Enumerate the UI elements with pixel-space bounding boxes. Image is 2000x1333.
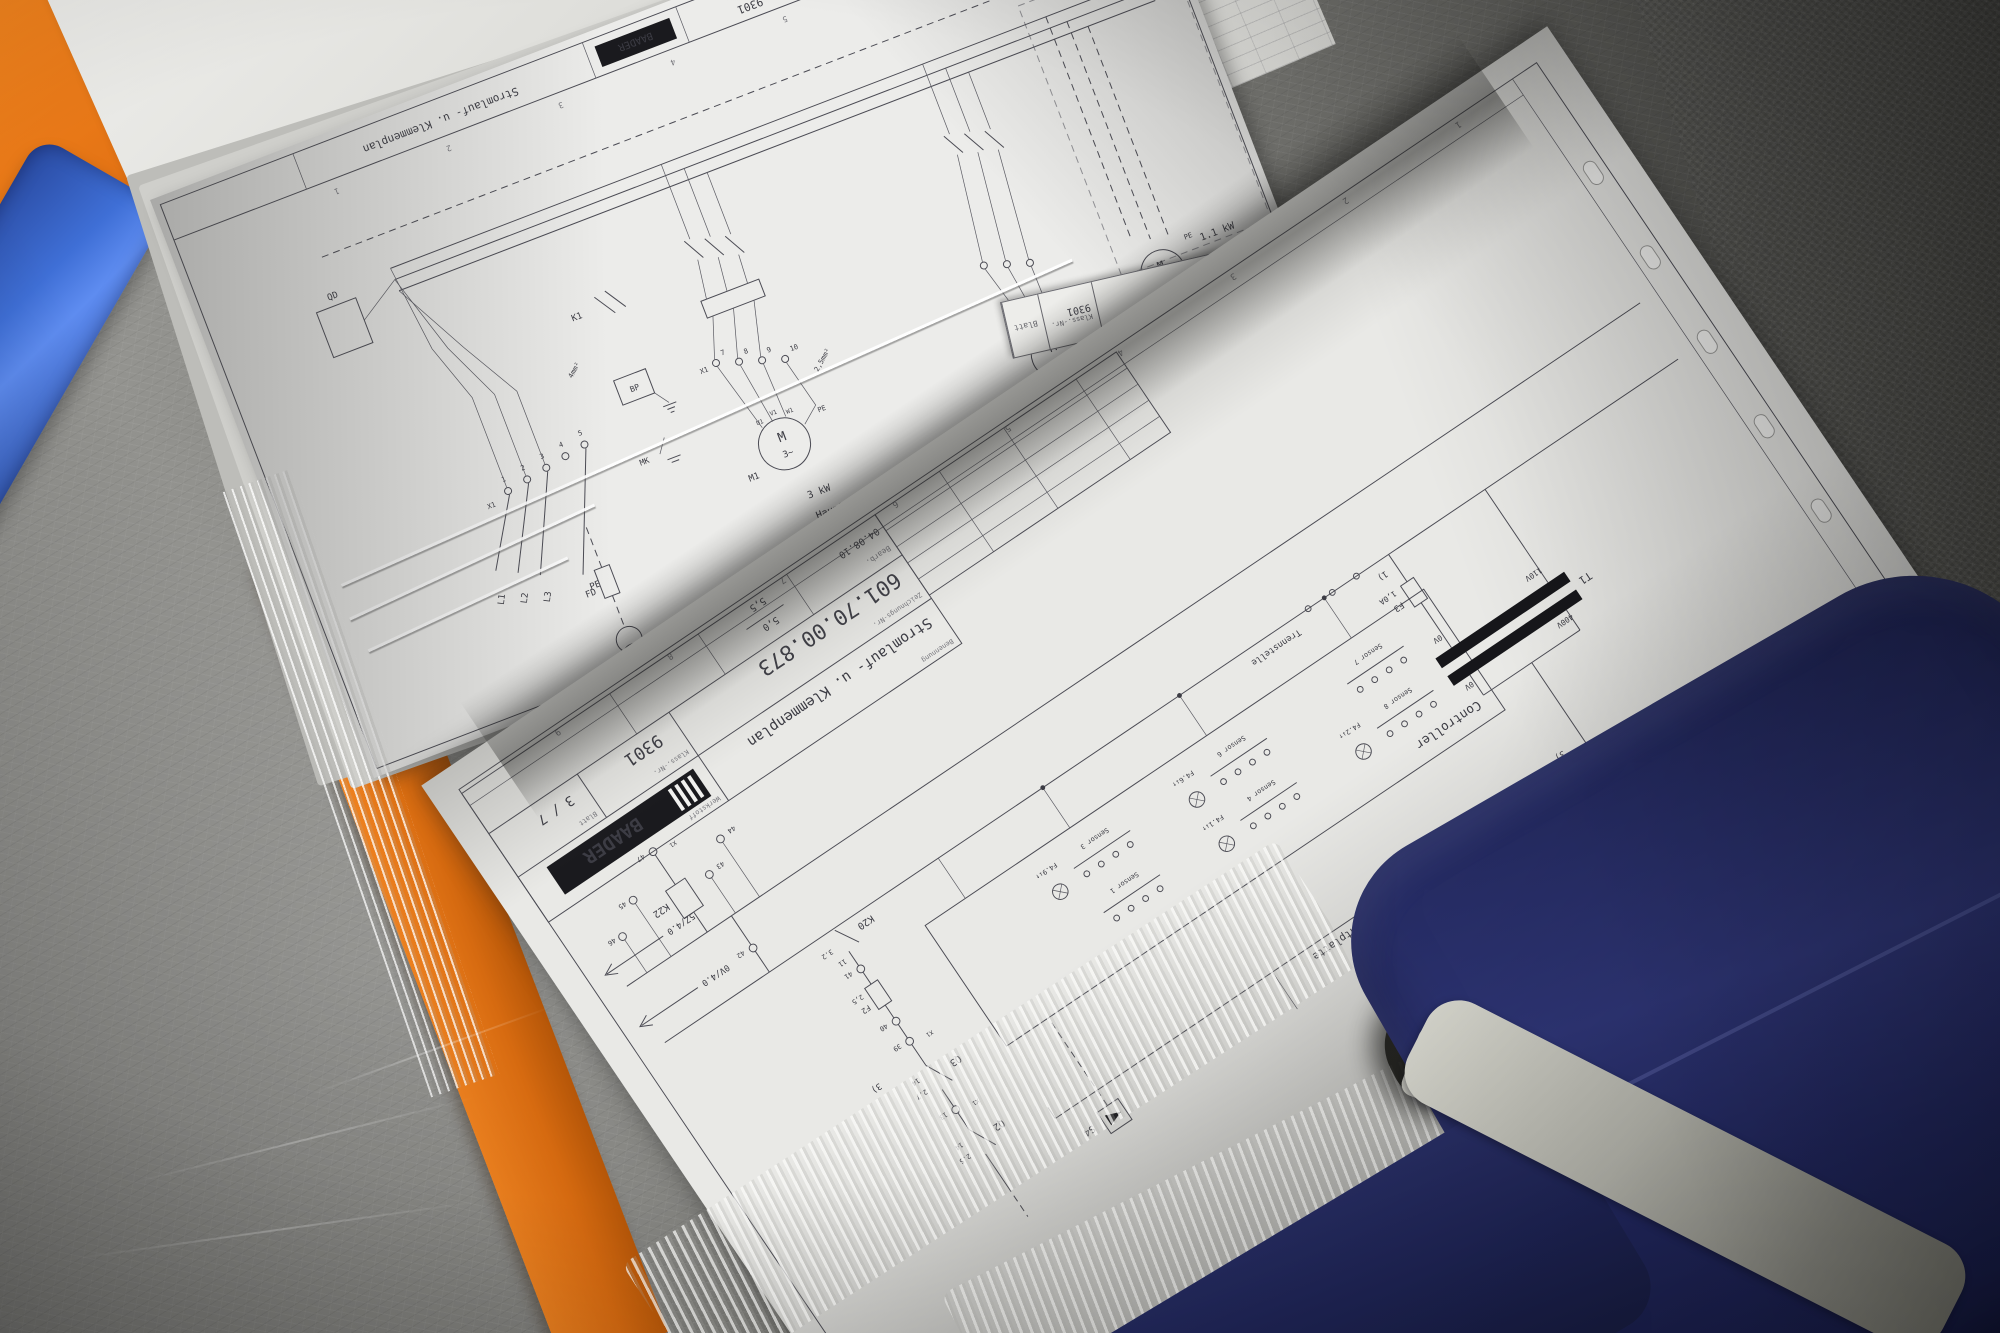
main-switch-label: QD — [326, 290, 340, 303]
scale-bottom: 5,5 — [747, 595, 768, 614]
motor-power: 3 kW — [806, 482, 833, 501]
motor-terminal: W1 — [785, 407, 795, 416]
svg-text:2: 2 — [445, 143, 453, 153]
pe-label: PE — [816, 404, 827, 414]
sheet-number: 3 / 7 — [534, 792, 577, 828]
voltage-label: 110V — [1523, 565, 1544, 583]
mk-label: MK — [638, 456, 650, 468]
document-title: Stromlauf- u. Klemmenplan — [744, 614, 935, 751]
svg-text:3: 3 — [1228, 270, 1238, 281]
wire-gauge: 4mm² — [567, 361, 582, 380]
phase-label: L3 — [543, 591, 554, 603]
controller-label: Controller — [1413, 698, 1485, 753]
terminal-number: 5 — [577, 429, 584, 438]
trennstelle-label: Trennstelle — [1249, 627, 1302, 668]
bearb-label: Bearb. — [864, 544, 892, 567]
sensor-cluster: Sensor 1 — [1094, 860, 1168, 925]
terminal-number: 46 — [606, 936, 617, 947]
metal-scratch-highlight — [125, 1096, 475, 1185]
photo-scene: BAADER Stromlauf- u. Klemmenplan 9301 Kl… — [0, 0, 2000, 1333]
svg-text:5: 5 — [781, 14, 789, 24]
transformer-label: T1 — [1576, 569, 1594, 587]
blatt-label: Blatt — [1013, 319, 1039, 333]
terminal-number: 43 — [715, 859, 726, 870]
fuse-label: F2 — [860, 1003, 873, 1016]
x1-label: X1 — [486, 501, 497, 511]
klass-number: 9301 — [620, 730, 666, 770]
relay-label: K20 — [855, 913, 876, 932]
terminal-number: 10 — [789, 343, 800, 353]
terminal-number: 44 — [726, 824, 737, 835]
fuse-label: F3 — [1391, 599, 1405, 613]
x1-label: X1 — [924, 1028, 934, 1037]
lamp-label: F4.9↓↑ — [1034, 861, 1059, 881]
sensor-cluster: Sensor 7 — [1338, 632, 1412, 697]
ref-mark: 3) — [869, 1080, 883, 1094]
motor-terminal: U1 — [755, 418, 765, 427]
x1-label: X1 — [699, 365, 710, 375]
branch-hauptantrieb: X1 7 8 9 10 M 3~ M1 U1 V1 W1 PE 2,5mm² 3… — [626, 131, 888, 542]
lamp-label: F4.2↓↑ — [1337, 720, 1362, 740]
svg-text:2: 2 — [1340, 194, 1350, 205]
relay-label: K1 — [570, 311, 584, 324]
terminal-number: 40 — [878, 1022, 889, 1033]
motor-terminal: V1 — [769, 409, 779, 418]
phase-label: L1 — [497, 594, 508, 606]
x1-label: X1 — [668, 839, 678, 848]
relay-coil-label: K22 — [650, 901, 671, 920]
terminal-number: 8 — [743, 347, 750, 356]
terminal-number: 9 — [766, 346, 773, 355]
motor-phase: 3~ — [782, 447, 796, 460]
pin-number: 11 — [837, 957, 848, 968]
terminal-number: 4 — [558, 440, 565, 449]
lamp-label: F4.6↓↑ — [1171, 768, 1196, 788]
terminal-number: 39 — [892, 1042, 903, 1053]
sensor-cluster: Sensor 6 F4.6↓↑ — [1171, 724, 1278, 813]
relay-ref: 3.2 — [820, 948, 835, 961]
continuation-arrow-label: 5Z/4.0 — [665, 910, 697, 936]
metal-scratch-highlight — [62, 1201, 478, 1261]
phase-label: L2 — [520, 592, 531, 604]
svg-text:3: 3 — [557, 100, 565, 110]
terminal-number: 7 — [720, 348, 727, 357]
sensor-cluster: Sensor 4 F4.1↓↑ — [1200, 768, 1307, 857]
sensor-cluster: Sensor 8 F4.2↓↑ — [1337, 676, 1444, 765]
terminal-number: 41 — [843, 969, 854, 980]
terminal-number: 47 — [635, 852, 646, 863]
brake-label: BP — [629, 382, 641, 394]
scale-top: 5,0 — [760, 614, 781, 633]
svg-text:1: 1 — [1453, 118, 1463, 129]
fuse-value: 2,5 — [850, 993, 865, 1006]
klass-label: Klass.-Nr. — [652, 748, 690, 777]
ref-mark: 1) — [1375, 568, 1389, 582]
motor-symbol: M — [776, 429, 789, 446]
pe-label: PE — [1183, 231, 1194, 241]
lamp-label: F4.1↓↑ — [1200, 813, 1225, 833]
terminal-number: 42 — [735, 949, 746, 960]
sensor-cluster: Sensor 3 F4.9↓↑ — [1034, 816, 1141, 905]
left-klass: 9301 — [735, 0, 764, 16]
svg-text:4: 4 — [669, 57, 677, 67]
svg-text:1: 1 — [333, 186, 341, 196]
terminal-number: 45 — [617, 900, 628, 911]
motor-id: M1 — [747, 471, 761, 484]
continuation-arrow-label: 0V/4.0 — [699, 962, 731, 988]
